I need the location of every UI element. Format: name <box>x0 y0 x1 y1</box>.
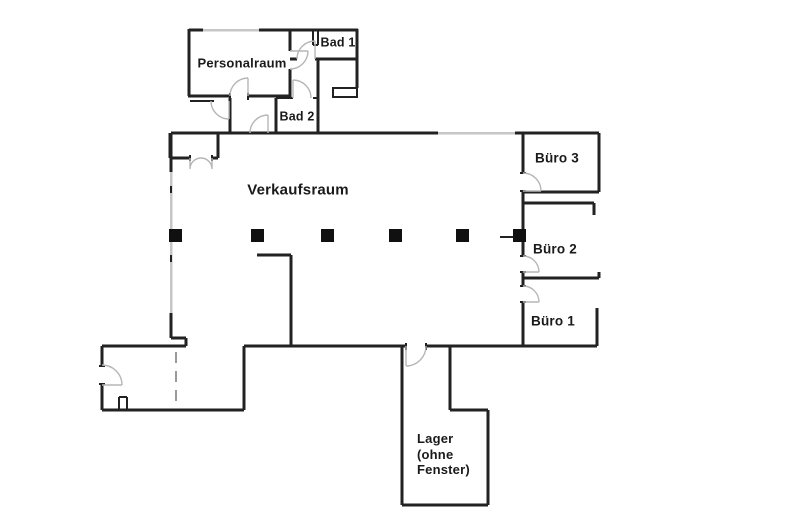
wall-annex <box>102 346 244 410</box>
walls-layer <box>99 29 599 505</box>
room-label-bad1: Bad 1 <box>320 36 355 51</box>
wall-lager <box>402 346 488 505</box>
pillar <box>389 229 402 242</box>
floor-plan: Personalraum Bad 1 Bad 2 Verkaufsraum Bü… <box>0 0 800 523</box>
pillar <box>456 229 469 242</box>
wall-buero2-top <box>523 203 594 215</box>
door-bad2 <box>293 80 311 98</box>
room-label-personalraum: Personalraum <box>197 56 286 71</box>
door-room-a <box>211 101 229 119</box>
room-label-lager: Lager (ohne Fenster) <box>417 431 470 478</box>
windows-layer <box>171 30 515 315</box>
door-buero3 <box>523 173 541 191</box>
floor-plan-drawing <box>0 0 800 523</box>
pillars <box>169 229 526 242</box>
pillar <box>251 229 264 242</box>
wall-annex-stub <box>119 397 127 410</box>
room-label-buero3: Büro 3 <box>535 151 579 166</box>
room-label-buero2: Büro 2 <box>533 242 577 257</box>
door-lager <box>406 346 426 366</box>
pillar <box>169 229 182 242</box>
door-room-b <box>250 115 268 133</box>
wall-notch-bad-block <box>333 88 357 97</box>
door-buero1 <box>523 286 539 302</box>
door-vestibule-double <box>190 158 212 169</box>
wall-interior-partial <box>257 255 291 346</box>
door-personalraum <box>230 78 248 96</box>
room-label-bad2: Bad 2 <box>279 110 314 125</box>
room-label-verkaufsraum: Verkaufsraum <box>247 183 349 198</box>
wall-buero2-buero1-divider <box>523 272 599 278</box>
door-buero2 <box>523 256 539 272</box>
doors-layer <box>102 41 541 385</box>
wall-left-lower <box>171 313 186 346</box>
wall-vestibule <box>170 133 218 158</box>
pillar <box>513 229 526 242</box>
door-annex-entrance <box>102 365 122 385</box>
pillar <box>321 229 334 242</box>
room-label-buero1: Büro 1 <box>531 314 575 329</box>
